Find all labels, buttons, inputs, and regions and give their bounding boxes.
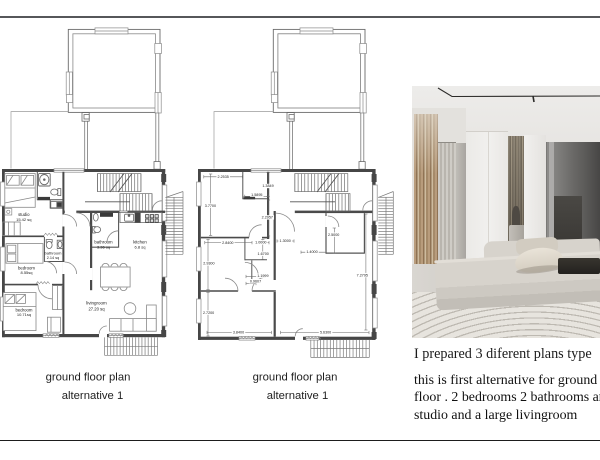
svg-text:1.3849: 1.3849 [262, 184, 273, 188]
svg-text:2.5000: 2.5000 [328, 233, 339, 237]
svg-text:7.2795: 7.2795 [357, 273, 368, 277]
svg-text:1.0000: 1.0000 [255, 241, 266, 245]
svg-text:2.14 sq: 2.14 sq [47, 256, 59, 260]
svg-text:2.8400: 2.8400 [222, 241, 233, 245]
svg-text:3.7700: 3.7700 [205, 204, 216, 208]
svg-text:2.7200: 2.7200 [203, 311, 214, 315]
svg-text:15.42 sq: 15.42 sq [16, 217, 31, 222]
svg-text:ground floor plan: ground floor plan [253, 372, 338, 384]
svg-text:1.3000: 1.3000 [280, 239, 291, 243]
svg-text:1.5895: 1.5895 [251, 193, 262, 197]
svg-text:10.71sq: 10.71sq [17, 312, 31, 317]
svg-text:ground floor plan: ground floor plan [46, 372, 131, 384]
svg-text:0.9607: 0.9607 [250, 279, 261, 283]
svg-text:2.2535: 2.2535 [218, 175, 229, 179]
svg-text:alternative 1: alternative 1 [62, 390, 124, 402]
svg-text:3.8400: 3.8400 [233, 331, 244, 335]
svg-text:1.6700: 1.6700 [258, 252, 269, 256]
svg-text:1.1999: 1.1999 [257, 274, 268, 278]
svg-text:3.36 sq: 3.36 sq [97, 244, 110, 249]
svg-text:5.6300: 5.6300 [320, 331, 331, 335]
svg-text:bathroom: bathroom [45, 251, 63, 256]
svg-text:6.8 sq: 6.8 sq [135, 244, 146, 249]
svg-text:8.55sq: 8.55sq [20, 270, 32, 275]
svg-text:livingroom: livingroom [86, 301, 107, 306]
svg-text:2.9300: 2.9300 [203, 262, 214, 266]
svg-text:2.2957: 2.2957 [262, 216, 273, 220]
svg-text:alternative 1: alternative 1 [267, 390, 329, 402]
svg-text:1.4000: 1.4000 [306, 250, 317, 254]
svg-text:27.20 sq: 27.20 sq [88, 306, 105, 311]
